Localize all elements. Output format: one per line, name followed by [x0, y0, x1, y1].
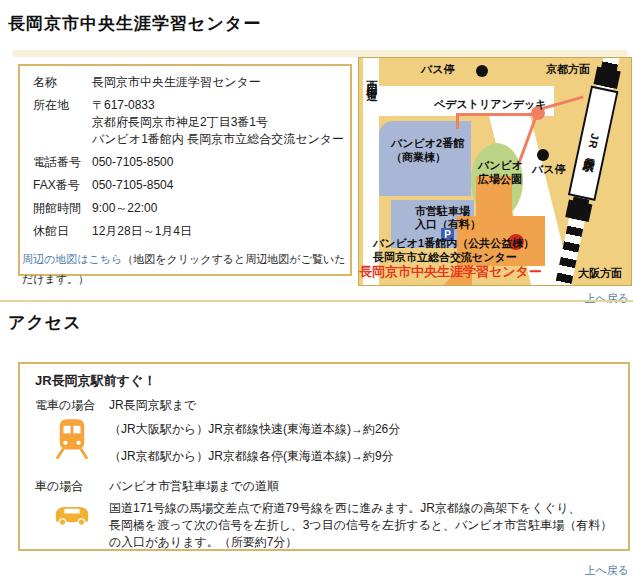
table-row: 電話番号 050-7105-8500	[33, 154, 344, 171]
back-to-top-link[interactable]: 上へ戻る	[584, 563, 629, 578]
train-label: 電車の場合	[35, 397, 109, 414]
row-value-line: バンビオ1番館内 長岡京市立総合交流センター	[92, 131, 344, 148]
car-label: 車の場合	[35, 478, 109, 495]
map-label-bambio2-sub: （商業棟）	[391, 151, 446, 164]
row-value: 9:00～22:00	[92, 200, 344, 217]
station-name-label: JR長岡京駅	[584, 132, 603, 155]
map-label-parking-1: 市営駐車場	[415, 205, 470, 218]
car-route-line: の入口があります。（所要約7分）	[109, 534, 612, 551]
map-label-bus-stop-right: バス停	[532, 163, 566, 176]
section-divider	[0, 300, 633, 302]
car-destination: バンビオ市営駐車場までの道順	[109, 478, 279, 495]
table-row: 所在地 〒617-0833 京都府長岡京市神足2丁目3番1号 バンビオ1番館内 …	[33, 97, 344, 148]
back-to-top-link[interactable]: 上へ戻る	[584, 291, 629, 306]
title-underline-rule	[12, 50, 628, 57]
row-label: 所在地	[33, 97, 92, 148]
train-destination: JR長岡京駅まで	[109, 397, 196, 414]
map-label-west-road: 西国街道	[365, 72, 378, 84]
map-label-bambio1: バンビオ1番館内（公共公益棟）	[373, 237, 534, 250]
access-highlight: JR長岡京駅前すぐ！	[35, 372, 156, 390]
row-value: 050-7105-8504	[92, 177, 344, 194]
map-label-park-1: バンビオ	[478, 159, 523, 172]
map-label-pedestrian-deck: ペデストリアンデッキ	[434, 98, 547, 111]
area-map-link[interactable]: 周辺の地図はこちら	[22, 253, 122, 265]
car-route-line: 国道171号線の馬場交差点で府道79号線を西に進みます。JR京都線の高架下をくぐ…	[109, 500, 612, 517]
car-row-body: 国道171号線の馬場交差点で府道79号線を西に進みます。JR京都線の高架下をくぐ…	[35, 500, 612, 551]
row-label: 電話番号	[33, 154, 92, 171]
access-heading: アクセス	[8, 311, 82, 334]
row-value-line: 〒617-0833	[92, 97, 344, 114]
train-row-body: （JR大阪駅から）JR京都線快速(東海道本線)→約26分 （JR京都駅から）JR…	[35, 416, 400, 470]
bus-stop-dot-top	[476, 65, 488, 77]
access-box: JR長岡京駅前すぐ！ 電車の場合 JR長岡京駅まで （JR大阪駅から）JR京都線…	[18, 362, 630, 551]
train-route-line: （JR京都駅から）JR京都線各停(東海道本線)→約9分	[109, 443, 400, 470]
car-row-header: 車の場合 バンビオ市営駐車場までの道順	[35, 478, 279, 495]
row-label: 名称	[33, 74, 92, 91]
map-label-bus-stop-top: バス停	[421, 63, 455, 76]
table-row: 名称 長岡京市中央生涯学習センター	[33, 74, 344, 91]
facility-info-box: 名称 長岡京市中央生涯学習センター 所在地 〒617-0833 京都府長岡京市神…	[18, 64, 352, 276]
map-label-bambio2: バンビオ2番館	[391, 137, 464, 150]
map-label-facility: 長岡京市中央生涯学習センター	[359, 263, 542, 281]
train-icon	[55, 418, 89, 463]
map-note: 周辺の地図はこちら（地図をクリックすると周辺地図がご覧いただけます。）	[20, 246, 350, 289]
facility-info-table: 名称 長岡京市中央生涯学習センター 所在地 〒617-0833 京都府長岡京市神…	[20, 66, 350, 240]
row-value: 050-7105-8500	[92, 154, 344, 171]
deck-line-horizontal	[456, 113, 541, 116]
row-value-line: 京都府長岡京市神足2丁目3番1号	[92, 114, 344, 131]
row-value: 長岡京市中央生涯学習センター	[92, 74, 344, 91]
map-label-kyoto-direction: 京都方面	[546, 63, 590, 76]
train-route-line: （JR大阪駅から）JR京都線快速(東海道本線)→約26分	[109, 416, 400, 443]
map-label-osaka-direction: 大阪方面	[578, 267, 622, 280]
row-label: 休館日	[33, 223, 92, 240]
bus-stop-dot-right	[537, 149, 549, 161]
map-label-park-2: 広場公園	[478, 173, 522, 186]
table-row: 休館日 12月28日～1月4日	[33, 223, 344, 240]
page-title: 長岡京市中央生涯学習センター	[8, 12, 261, 35]
table-row: 開館時間 9:00～22:00	[33, 200, 344, 217]
row-label: FAX番号	[33, 177, 92, 194]
row-value: 12月28日～1月4日	[92, 223, 344, 240]
access-map[interactable]: JR長岡京駅 西国街道 バス停 京都方面 ペデストリアンデッキ バンビオ2番館 …	[358, 57, 632, 286]
deck-line-tick	[456, 113, 459, 129]
table-row: FAX番号 050-7105-8504	[33, 177, 344, 194]
car-route-line: 長岡橋を渡って次の信号を左折し、3つ目の信号を左折すると、バンビオ市営駐車場（有…	[109, 517, 612, 534]
page: { "colors": { "border_tan": "#d9b567", "…	[0, 0, 633, 582]
car-icon	[53, 502, 91, 531]
train-row-header: 電車の場合 JR長岡京駅まで	[35, 397, 196, 414]
station-box: JR長岡京駅	[568, 86, 619, 201]
row-label: 開館時間	[33, 200, 92, 217]
